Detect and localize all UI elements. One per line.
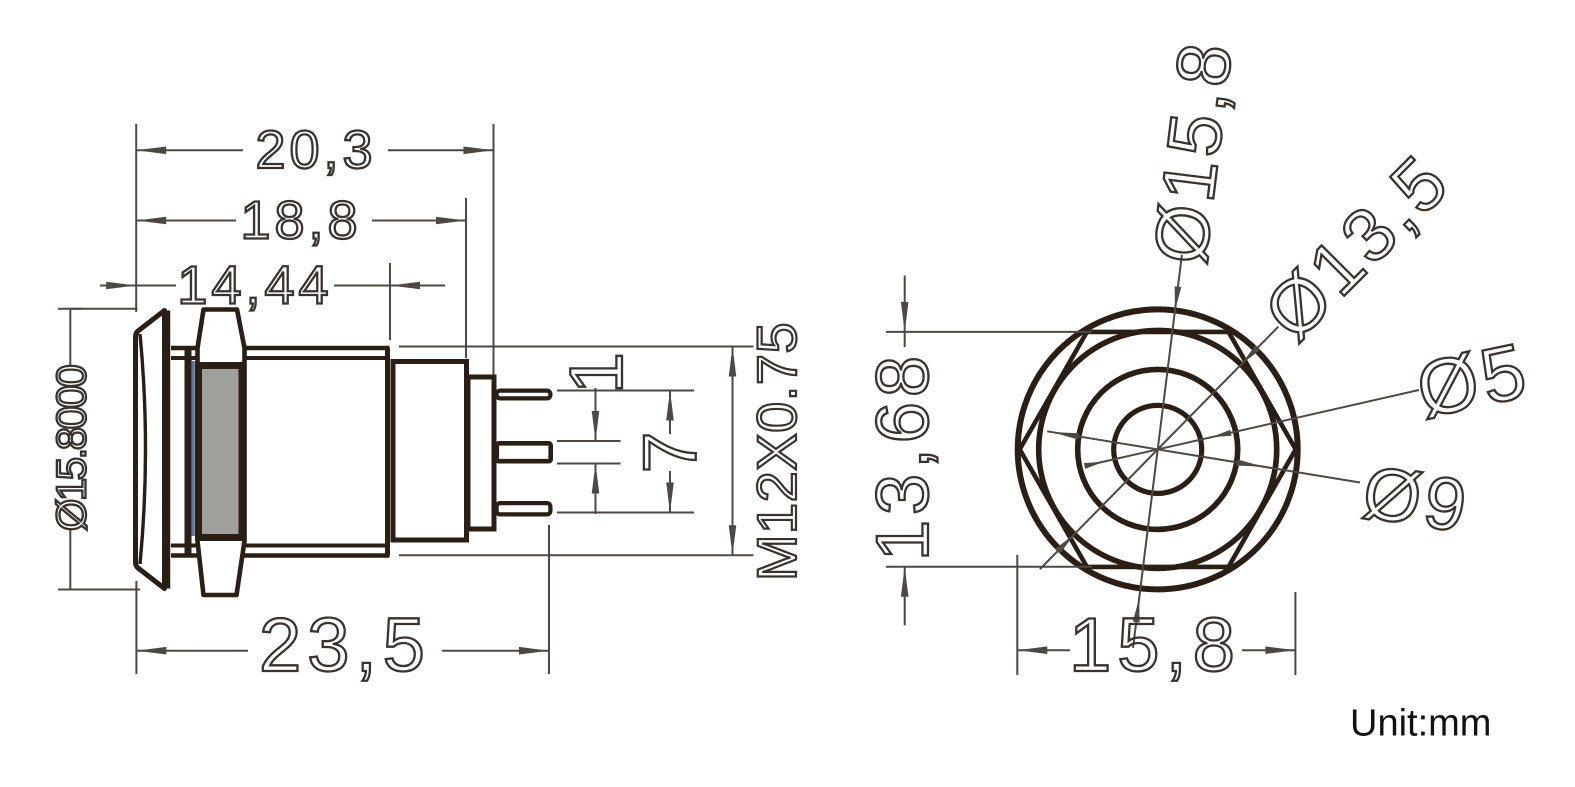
svg-text:M12X0.75: M12X0.75 [745, 322, 808, 581]
svg-text:18,8: 18,8 [240, 191, 361, 251]
svg-text:14,44: 14,44 [177, 256, 332, 316]
svg-text:15,8: 15,8 [1069, 603, 1241, 688]
svg-text:1: 1 [554, 352, 638, 394]
svg-text:7: 7 [628, 432, 712, 474]
svg-text:13,68: 13,68 [861, 351, 944, 561]
svg-text:Ø15.8000: Ø15.8000 [48, 366, 95, 532]
svg-text:Ø9: Ø9 [1357, 450, 1475, 549]
svg-text:20,3: 20,3 [255, 120, 376, 180]
svg-text:Unit:mm: Unit:mm [1350, 703, 1491, 745]
svg-text:23,5: 23,5 [259, 603, 431, 688]
